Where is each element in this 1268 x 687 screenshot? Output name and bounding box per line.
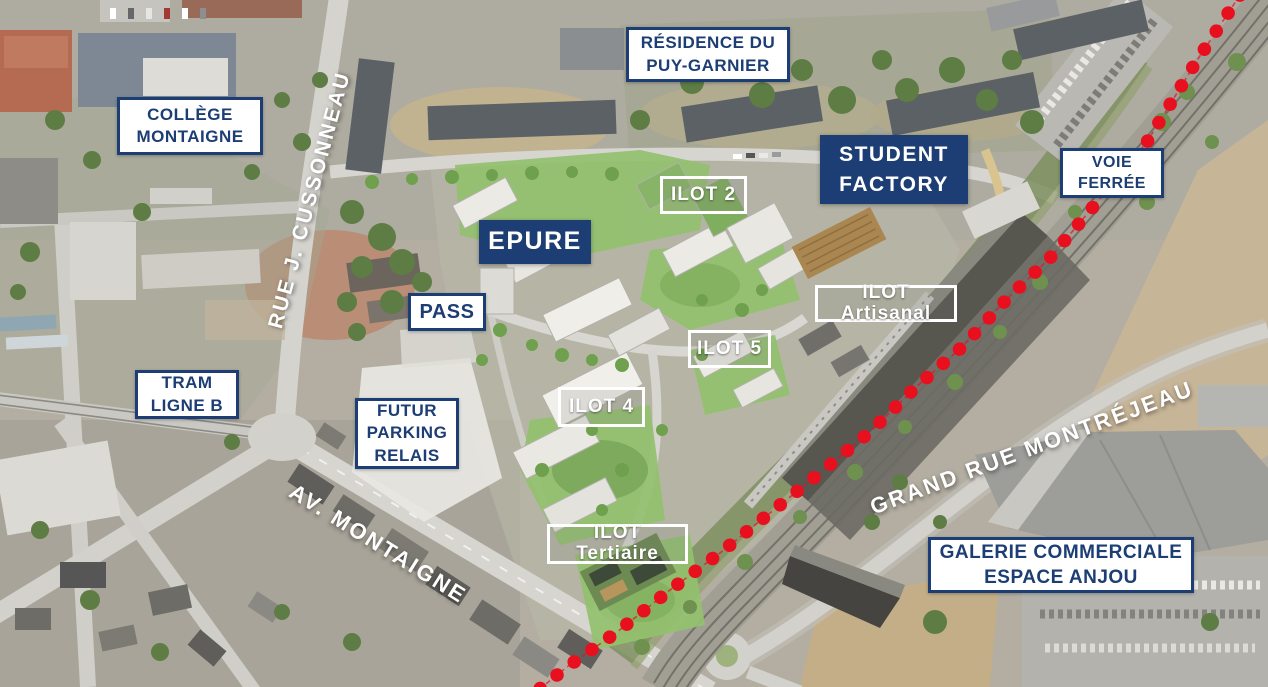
label-line: PUY-GARNIER bbox=[646, 55, 770, 77]
label-line: FACTORY bbox=[839, 170, 949, 200]
label-galerie-commerciale: GALERIE COMMERCIALE ESPACE ANJOU bbox=[928, 537, 1194, 593]
label-ilot-artisanal: ILOT Artisanal bbox=[815, 285, 957, 322]
label-line: ILOT 5 bbox=[697, 339, 762, 360]
label-line: EPURE bbox=[488, 224, 582, 260]
label-line: RÉSIDENCE DU bbox=[641, 32, 775, 54]
label-line: PASS bbox=[420, 299, 475, 325]
label-line: RELAIS bbox=[374, 445, 439, 467]
label-voie-ferree: VOIE FERRÉE bbox=[1060, 148, 1164, 198]
label-ilot-tertiaire: ILOT Tertiaire bbox=[547, 524, 688, 564]
label-line: FUTUR bbox=[377, 400, 437, 422]
label-line: ILOT Artisanal bbox=[818, 283, 954, 325]
label-line: ILOT 4 bbox=[569, 397, 634, 418]
label-line: STUDENT bbox=[839, 140, 949, 170]
label-student-factory: STUDENT FACTORY bbox=[820, 135, 968, 204]
label-tram-ligne-b: TRAM LIGNE B bbox=[135, 370, 239, 419]
label-line: TRAM bbox=[161, 372, 212, 394]
label-epure: EPURE bbox=[479, 220, 591, 264]
label-pass: PASS bbox=[408, 293, 486, 331]
label-ilot-4: ILOT 4 bbox=[558, 387, 645, 427]
label-line: COLLÈGE bbox=[147, 104, 233, 126]
label-line: MONTAIGNE bbox=[136, 126, 243, 148]
label-line: FERRÉE bbox=[1078, 173, 1146, 194]
label-ilot-5: ILOT 5 bbox=[688, 330, 771, 368]
label-ilot-2: ILOT 2 bbox=[660, 176, 747, 214]
label-line: ESPACE ANJOU bbox=[984, 565, 1138, 590]
label-line: GALERIE COMMERCIALE bbox=[940, 540, 1183, 565]
label-futur-parking-relais: FUTUR PARKING RELAIS bbox=[355, 398, 459, 469]
aerial-map: RUE J. CUSSONNEAU AV. MONTAIGNE GRAND RU… bbox=[0, 0, 1268, 687]
label-line: ILOT 2 bbox=[671, 185, 736, 206]
label-residence-puy-garnier: RÉSIDENCE DU PUY-GARNIER bbox=[626, 27, 790, 82]
label-line: PARKING bbox=[367, 422, 448, 444]
label-line: ILOT Tertiaire bbox=[550, 523, 685, 565]
label-college-montaigne: COLLÈGE MONTAIGNE bbox=[117, 97, 263, 155]
label-line: VOIE bbox=[1092, 152, 1132, 173]
label-line: LIGNE B bbox=[151, 395, 223, 417]
